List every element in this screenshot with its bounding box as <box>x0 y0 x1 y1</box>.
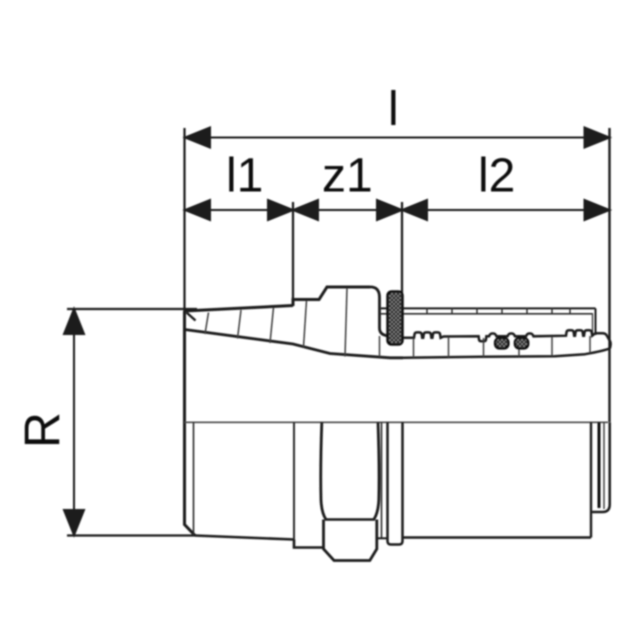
svg-text:z1: z1 <box>322 150 373 203</box>
svg-text:R: R <box>15 412 71 448</box>
svg-text:l2: l2 <box>478 150 515 203</box>
svg-text:l1: l1 <box>226 150 263 203</box>
svg-text:l: l <box>388 83 399 136</box>
